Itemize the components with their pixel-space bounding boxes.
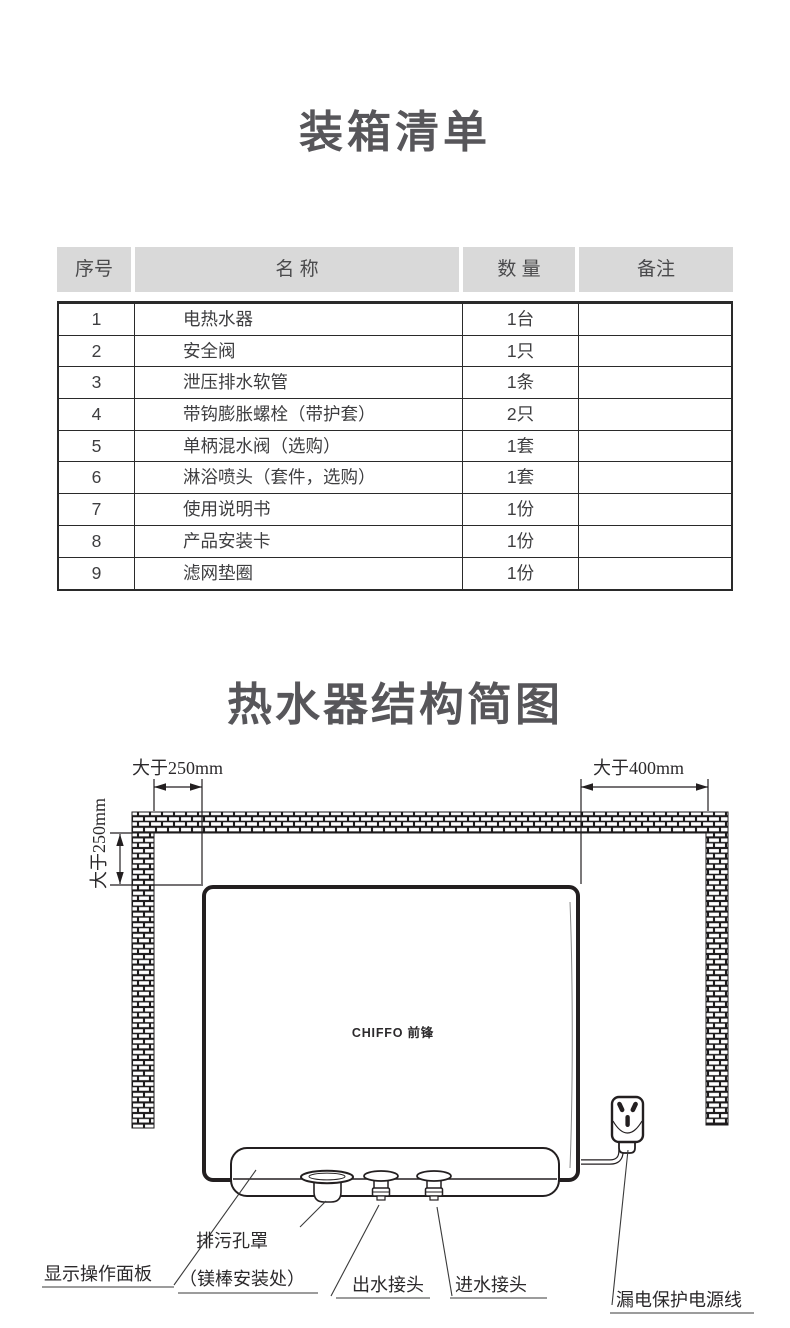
structure-diagram: 大于250mm 大于400mm 大于250mm CHIFFO 前锋	[0, 0, 790, 1328]
label-display-panel: 显示操作面板	[44, 1264, 152, 1284]
label-inlet: 进水接头	[455, 1275, 527, 1295]
brand-logo: CHIFFO 前锋	[352, 1025, 434, 1040]
manual-page: 装箱清单 序号 名 称 数 量 备注 1 电热水器 1台 2 安全阀 1只 3 …	[0, 0, 790, 1328]
dim-label-top-left: 大于250mm	[132, 758, 223, 778]
label-drain-cover-line1: 排污孔罩	[196, 1231, 268, 1251]
part-labels: 显示操作面板 排污孔罩 （镁棒安装处） 出水接头 进水接头 漏电保护电源线	[42, 1231, 754, 1313]
dim-label-top-right: 大于400mm	[593, 758, 684, 778]
label-power-cord: 漏电保护电源线	[616, 1290, 742, 1310]
power-cord	[581, 1150, 621, 1162]
brick-wall-right	[706, 833, 728, 1125]
label-outlet: 出水接头	[352, 1275, 424, 1295]
label-drain-cover-line2: （镁棒安装处）	[179, 1269, 305, 1289]
dimension-left	[110, 833, 203, 885]
brick-wall-ceiling	[132, 812, 728, 833]
bottom-panel	[231, 1148, 559, 1196]
dim-label-left: 大于250mm	[89, 798, 109, 889]
brick-wall-left	[132, 833, 154, 1128]
power-plug-icon	[612, 1097, 643, 1153]
